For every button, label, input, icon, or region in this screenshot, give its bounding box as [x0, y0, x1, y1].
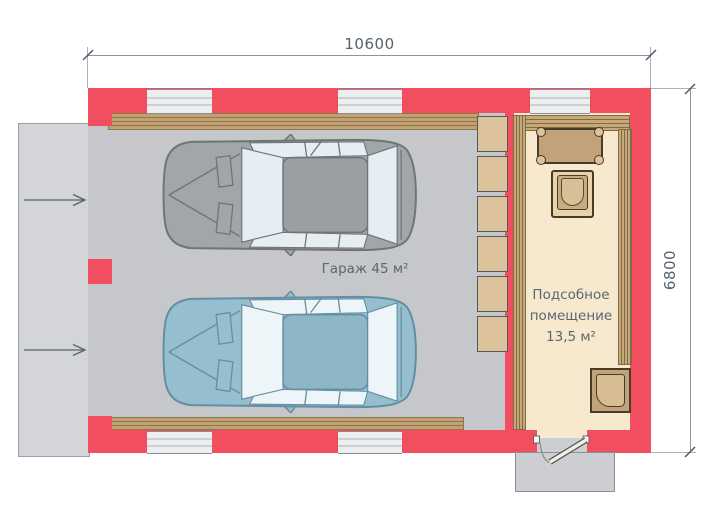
chair-seat — [557, 175, 588, 210]
wall-pier-middle-left — [88, 259, 112, 284]
workbench-table — [537, 128, 603, 164]
table-leg — [594, 155, 604, 165]
utility-room-label: Подсобное помещение 13,5 м² — [513, 285, 629, 348]
car-top-view-blue — [154, 291, 420, 413]
wall-right — [630, 88, 651, 453]
table-leg — [536, 155, 546, 165]
shelf — [477, 236, 508, 272]
wall-pier-bottom-left — [88, 416, 112, 453]
extension-line-top-left — [87, 47, 88, 88]
utility-label-line1: Подсобное — [513, 285, 629, 306]
shelf — [477, 116, 508, 152]
door-threshold — [537, 430, 587, 438]
wood-trim-top — [108, 113, 479, 130]
window-bottom-1 — [147, 431, 212, 454]
car-top-view-gray — [154, 134, 420, 256]
utility-lining-left — [513, 115, 526, 430]
window-top-1 — [147, 89, 212, 114]
dimension-label-width: 10600 — [88, 35, 651, 53]
chair — [551, 170, 594, 218]
sink — [590, 368, 631, 413]
dimension-line-right — [690, 88, 691, 453]
wall-pier-top-left — [88, 88, 112, 126]
window-bottom-2 — [338, 431, 402, 454]
garage-label: Гараж 45 м² — [285, 261, 445, 277]
shelf — [477, 276, 508, 312]
dimension-line-top — [88, 55, 651, 56]
sink-basin — [596, 374, 625, 407]
driveway-apron — [18, 123, 90, 457]
shelf — [477, 316, 508, 352]
porch — [515, 452, 615, 492]
floor-plan-canvas: 10600 6800 — [0, 0, 718, 530]
window-top-3 — [530, 89, 590, 114]
extension-line-top-right — [650, 47, 651, 88]
door-opening — [537, 438, 587, 453]
chair-seat-inner — [561, 178, 584, 206]
utility-label-line3: 13,5 м² — [513, 327, 629, 348]
shelf — [477, 156, 508, 192]
dimension-label-height: 6800 — [661, 230, 681, 310]
utility-label-line2: помещение — [513, 306, 629, 327]
table-leg — [536, 127, 546, 137]
shelving-unit — [477, 116, 508, 356]
table-leg — [594, 127, 604, 137]
shelf — [477, 196, 508, 232]
window-top-2 — [338, 89, 402, 114]
